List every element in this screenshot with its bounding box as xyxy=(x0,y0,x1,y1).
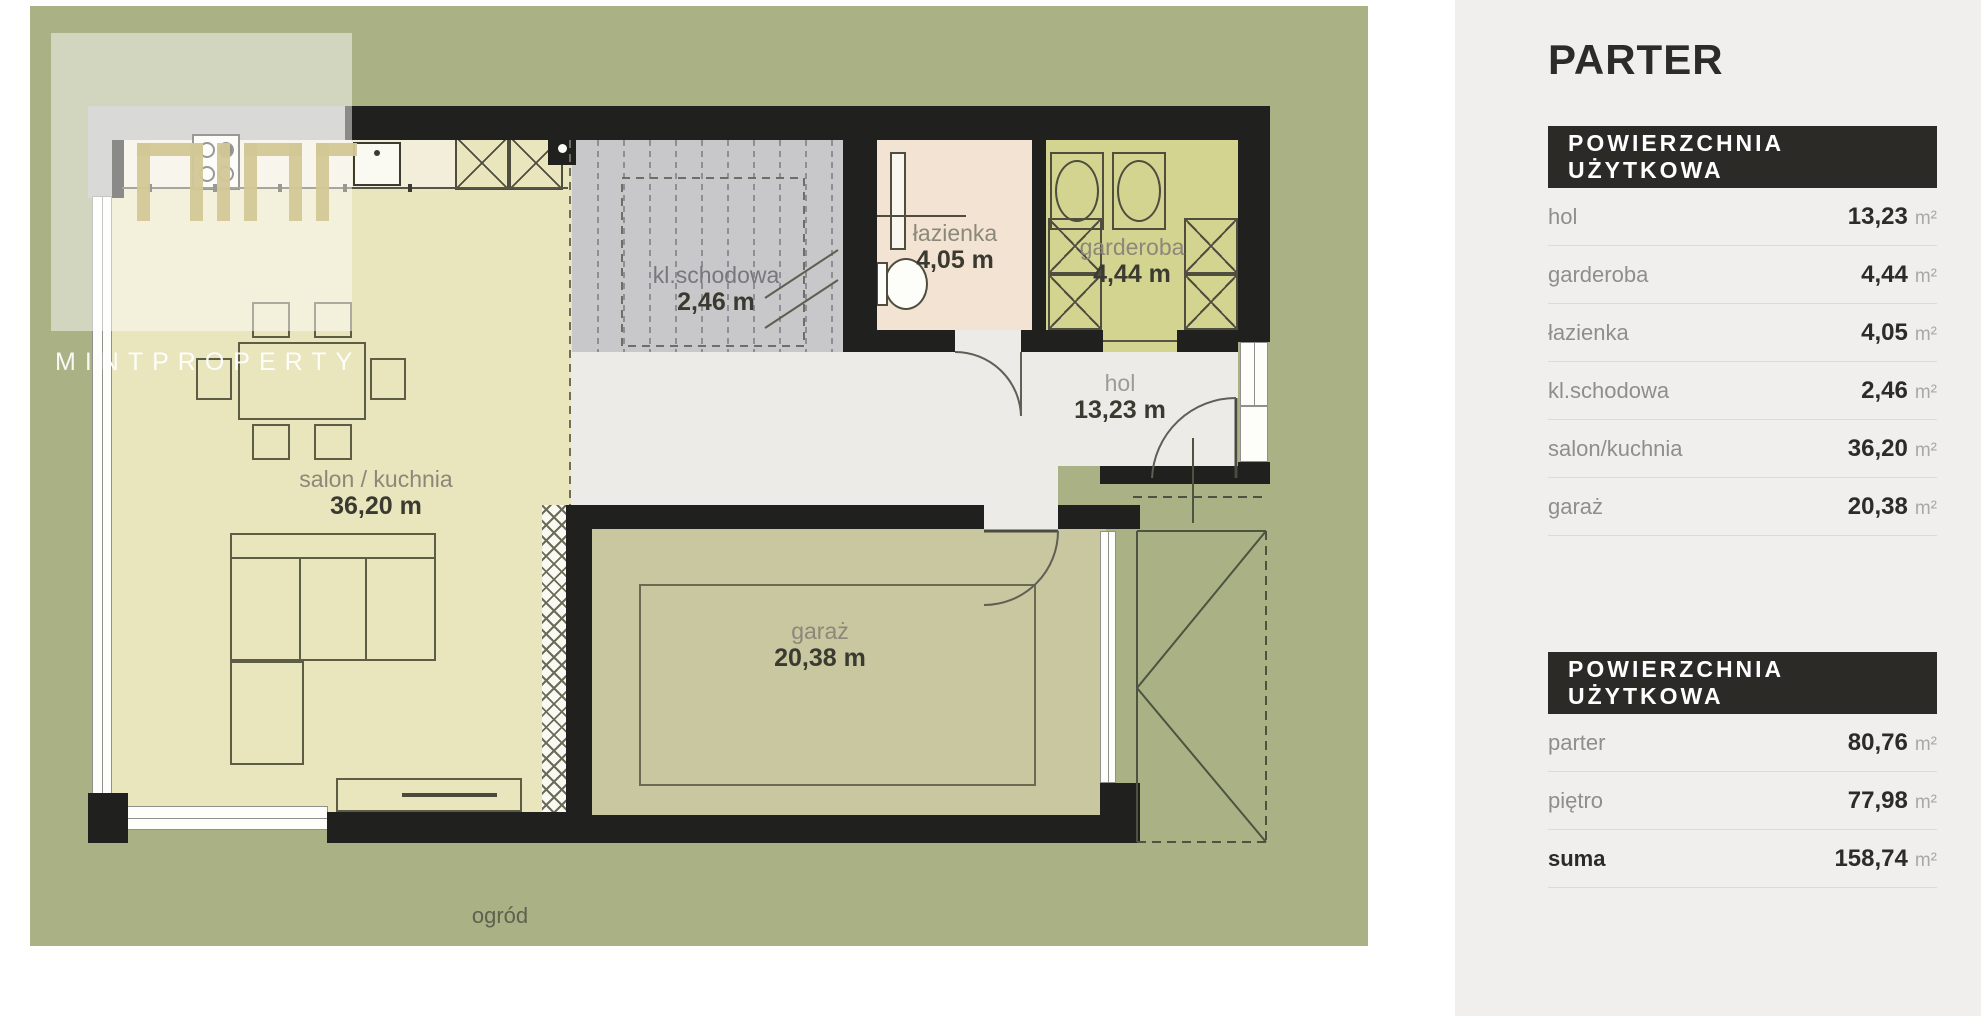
room-hall-extension xyxy=(571,466,1058,507)
table-row: kl.schodowa 2,46m² xyxy=(1548,362,1937,420)
label-wardrobe: garderoba 4,44 m xyxy=(1080,234,1185,288)
watermark-square xyxy=(51,33,352,331)
wall-garage-corner xyxy=(1100,783,1140,843)
area-table-rooms: POWIERZCHNIA UŻYTKOWA hol 13,23m² garder… xyxy=(1548,126,1937,536)
wardrobe-icon xyxy=(1184,218,1238,274)
table-header: POWIERZCHNIA UŻYTKOWA xyxy=(1548,652,1937,714)
wardrobe-icon xyxy=(1184,274,1238,330)
table-row: garaż 20,38m² xyxy=(1548,478,1937,536)
table-row-total: suma 158,74m² xyxy=(1548,830,1937,888)
chair xyxy=(370,358,406,400)
cabinet-icon xyxy=(455,136,509,190)
wardrobe-door-gap xyxy=(1103,330,1177,352)
window-bottom-wall xyxy=(112,806,328,830)
sink-icon xyxy=(353,142,401,186)
garage-door-gap xyxy=(984,505,1058,531)
page-title: PARTER xyxy=(1548,36,1724,84)
wall-right-upper xyxy=(1238,140,1270,342)
table-row: garderoba 4,44m² xyxy=(1548,246,1937,304)
bathroom-door-gap xyxy=(955,330,1021,352)
wall-garage-bottom xyxy=(560,815,1140,843)
garage-door xyxy=(1100,531,1116,783)
sofa-chaise xyxy=(230,661,304,765)
label-bathroom: łazienka 4,05 m xyxy=(913,220,997,274)
wall-bath-wardrobe xyxy=(1032,140,1046,332)
chair xyxy=(252,424,290,460)
wall-hall-top xyxy=(843,330,1238,352)
label-staircase: kl.schodowa 2,46 m xyxy=(653,262,780,316)
label-garden: ogród xyxy=(440,903,560,929)
wall-stairs-bath xyxy=(843,106,877,352)
front-door-opening xyxy=(1240,406,1268,462)
info-panel: PARTER POWIERZCHNIA UŻYTKOWA hol 13,23m²… xyxy=(1455,0,1981,1016)
mint-logo-icon xyxy=(137,143,357,221)
wall-hall-bottom xyxy=(1100,466,1270,484)
label-hall: hol 13,23 m xyxy=(1074,370,1166,424)
sideboard xyxy=(336,778,522,812)
table-row: piętro 77,98m² xyxy=(1548,772,1937,830)
area-table-totals: POWIERZCHNIA UŻYTKOWA parter 80,76m² pię… xyxy=(1548,652,1937,888)
table-row: salon/kuchnia 36,20m² xyxy=(1548,420,1937,478)
wall-top xyxy=(345,106,1270,140)
hatched-wall xyxy=(542,505,566,815)
column-icon xyxy=(548,131,576,165)
wall-left-corner xyxy=(88,793,128,843)
table-row: parter 80,76m² xyxy=(1548,714,1937,772)
label-living-kitchen: salon / kuchnia 36,20 m xyxy=(299,466,452,520)
brand-watermark: MINTPROPERTY xyxy=(55,348,365,377)
sofa xyxy=(230,533,436,661)
window-right-wall xyxy=(1240,342,1268,406)
wall-bottom-salon xyxy=(327,812,572,843)
toilet-tank-icon xyxy=(876,262,888,306)
radiator-icon xyxy=(890,152,906,250)
chair xyxy=(314,424,352,460)
label-garage: garaż 20,38 m xyxy=(774,618,866,672)
washing-machine-icon xyxy=(1112,152,1166,230)
floor-plan-screenshot: MINTPROPERTY salon / kuchnia 36,20 m kl.… xyxy=(0,0,1981,1016)
table-row: hol 13,23m² xyxy=(1548,188,1937,246)
table-row: łazienka 4,05m² xyxy=(1548,304,1937,362)
table-header: POWIERZCHNIA UŻYTKOWA xyxy=(1548,126,1937,188)
room-staircase xyxy=(572,140,843,352)
wall-garage-left xyxy=(566,505,592,843)
